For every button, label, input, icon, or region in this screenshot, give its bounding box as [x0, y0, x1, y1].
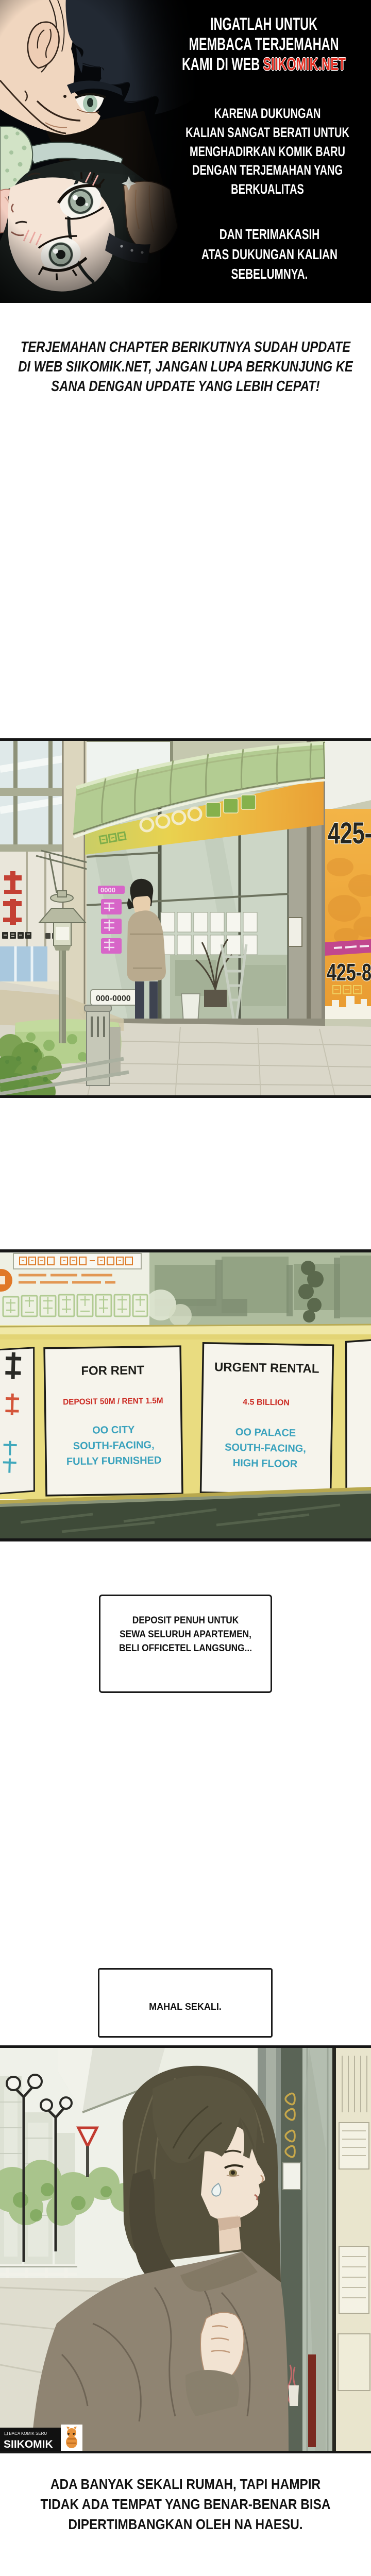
- svg-text:FOR RENT: FOR RENT: [81, 1363, 144, 1378]
- svg-text:000-0000: 000-0000: [96, 994, 131, 1003]
- svg-text:❑ BACA KOMIK SERU: ❑ BACA KOMIK SERU: [4, 2431, 47, 2436]
- svg-text:OO PALACE: OO PALACE: [235, 1427, 296, 1439]
- svg-text:SIIKOMIK: SIIKOMIK: [4, 2438, 53, 2450]
- svg-text:SOUTH-FACING,: SOUTH-FACING,: [225, 1442, 306, 1455]
- svg-text:DEPOSIT 50M / RENT 1.5M: DEPOSIT 50M / RENT 1.5M: [63, 1396, 163, 1406]
- svg-text:SOUTH-FACING,: SOUTH-FACING,: [73, 1439, 155, 1452]
- svg-text:425-8: 425-8: [328, 817, 371, 850]
- svg-text:425-8: 425-8: [327, 959, 371, 986]
- svg-text:URGENT RENTAL: URGENT RENTAL: [214, 1360, 319, 1376]
- svg-text:OO CITY: OO CITY: [92, 1424, 135, 1436]
- svg-text:4.5 BILLION: 4.5 BILLION: [243, 1398, 290, 1408]
- svg-text:HIGH FLOOR: HIGH FLOOR: [233, 1458, 298, 1470]
- svg-text:FULLY FURNISHED: FULLY FURNISHED: [66, 1455, 162, 1468]
- svg-text:0000: 0000: [100, 886, 115, 894]
